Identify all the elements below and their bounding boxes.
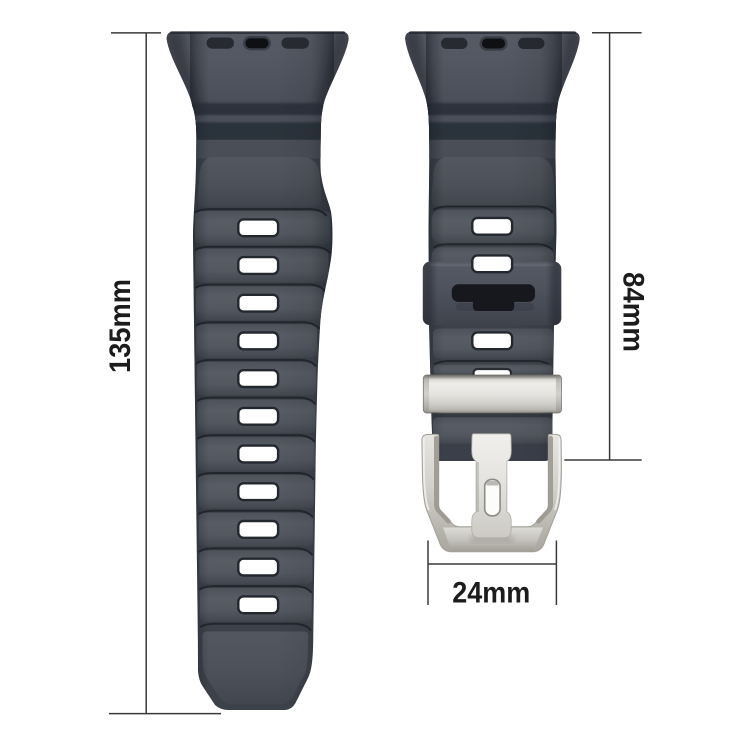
svg-text:24mm: 24mm xyxy=(452,577,530,610)
svg-text:84mm: 84mm xyxy=(617,272,650,352)
svg-text:135mm: 135mm xyxy=(104,279,137,373)
